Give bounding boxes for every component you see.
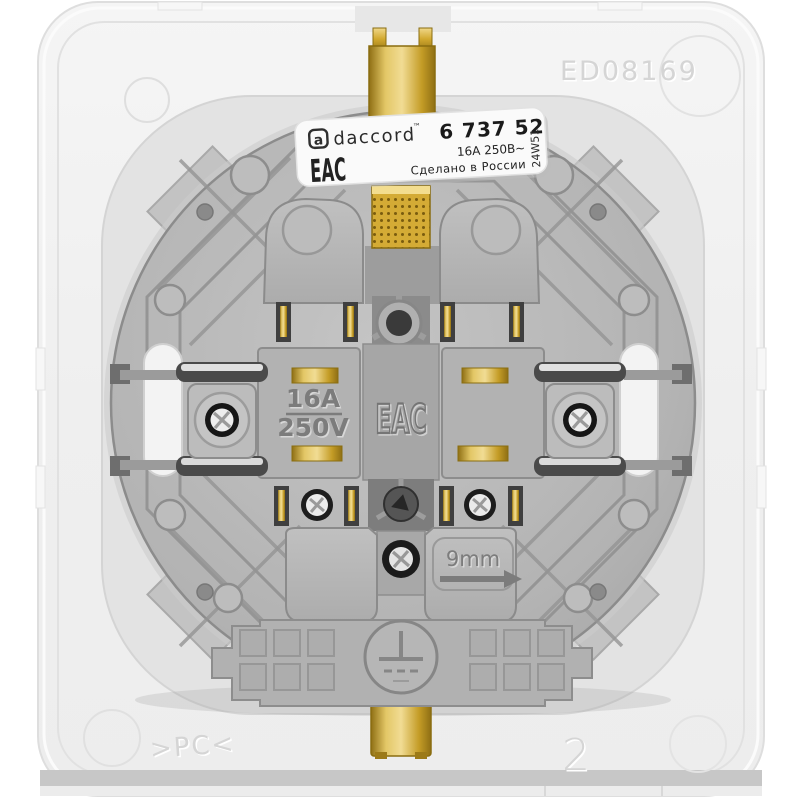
knurled-brass-plate	[372, 186, 430, 248]
terminal-cover-bottom-left	[286, 528, 377, 622]
frame-bottom-side	[40, 770, 762, 786]
batch-code: 24W51	[528, 128, 543, 168]
svg-text:250V: 250V	[277, 413, 349, 442]
terminal-block: 16A 16A 250V 250V EAC EAC	[258, 186, 544, 622]
terminal-screw-right	[464, 489, 496, 521]
earth-symbol-icon	[365, 621, 437, 693]
frame-bottom-lip	[40, 786, 762, 796]
mounting-slot-left	[144, 344, 182, 476]
molded-eac-mark: EAC EAC	[375, 395, 428, 444]
earth-terminal-screw	[382, 540, 420, 578]
frame-code: ED08169	[560, 56, 698, 87]
brand-label: a daccord ™ 6 737 52 EAC 16A 250В~ Сдела…	[294, 107, 551, 191]
mold-cavity-number: 2	[562, 730, 592, 781]
mounting-slot-right	[620, 344, 658, 476]
terminal-screw-left	[301, 489, 333, 521]
material-marking: >PC< >PC<	[149, 729, 238, 766]
trademark: ™	[413, 122, 421, 131]
svg-text:EAC: EAC	[375, 395, 426, 443]
socket-rear-photo: ED08169 ED08169 >PC< >PC< 2 2	[0, 0, 800, 800]
claw-screw-left	[205, 403, 239, 437]
svg-text:16A: 16A	[286, 384, 341, 413]
bottom-support-bar	[212, 620, 592, 706]
svg-text:>PC<: >PC<	[149, 729, 236, 765]
product-photo: ED08169 ED08169 >PC< >PC< 2 2	[0, 0, 800, 800]
terminal-cover-bottom-right	[425, 528, 516, 622]
molded-rating: 16A 16A 250V 250V	[277, 384, 351, 443]
claw-screw-right	[563, 403, 597, 437]
logo-glyph: a	[313, 132, 323, 149]
svg-text:9mm: 9mm	[446, 547, 500, 571]
eac-mark: EAC	[309, 151, 347, 189]
